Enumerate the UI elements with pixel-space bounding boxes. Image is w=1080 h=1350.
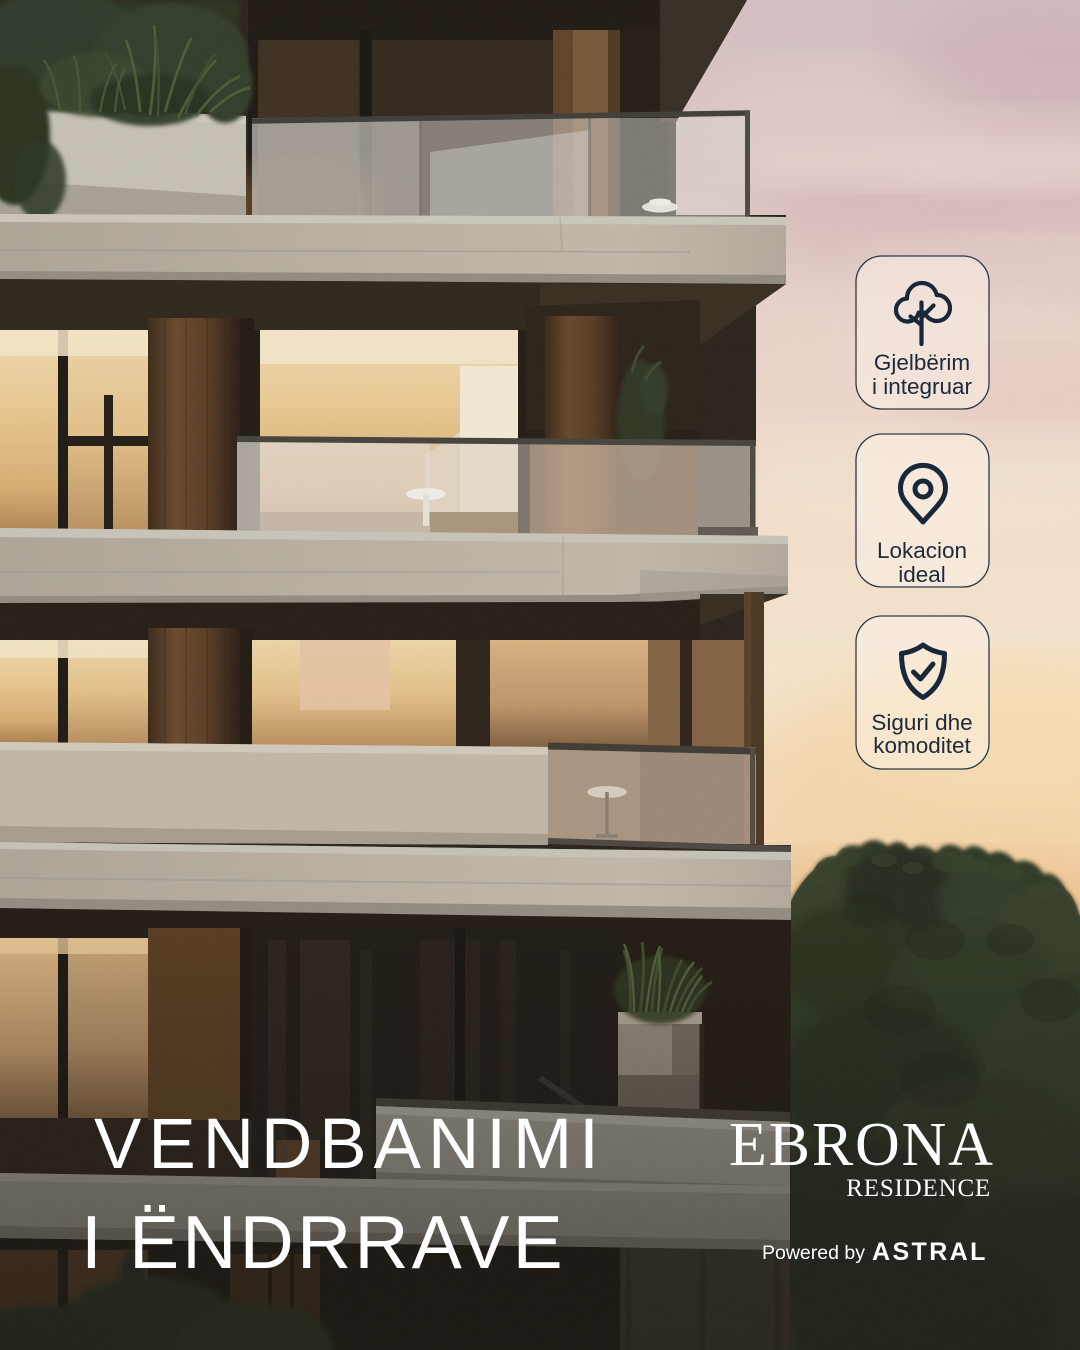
svg-text:i integruar: i integruar: [872, 374, 973, 399]
svg-text:RESIDENCE: RESIDENCE: [846, 1175, 991, 1202]
svg-text:ideal: ideal: [898, 562, 946, 587]
svg-text:komoditet: komoditet: [873, 733, 971, 758]
svg-text:VENDBANIMI: VENDBANIMI: [94, 1105, 606, 1184]
svg-text:EBRONA: EBRONA: [729, 1111, 995, 1179]
svg-text:Powered by: Powered by: [762, 1242, 865, 1264]
svg-text:Gjelbërim: Gjelbërim: [874, 350, 970, 375]
svg-text:Lokacion: Lokacion: [877, 538, 967, 563]
svg-text:I ËNDRRAVE: I ËNDRRAVE: [81, 1200, 566, 1284]
svg-text:Siguri dhe: Siguri dhe: [871, 710, 972, 735]
svg-text:ASTRAL: ASTRAL: [872, 1238, 988, 1266]
